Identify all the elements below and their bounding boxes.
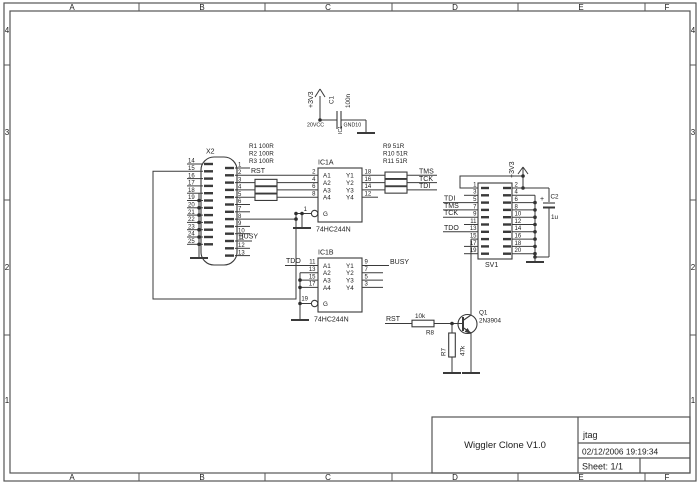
frame-column-letter: F [665, 3, 670, 12]
junction-dot [298, 278, 302, 282]
connector-pin-pad [204, 236, 213, 238]
pin-name: A4 [323, 195, 331, 202]
pin-number: 19 [188, 195, 195, 201]
pin-number: 1 [304, 207, 308, 213]
pin-number: 18 [188, 188, 195, 194]
junction-dot [197, 228, 201, 232]
connector-pin-pad [204, 207, 213, 209]
pin-number: 9 [365, 260, 369, 266]
inverter-bubble [311, 210, 317, 216]
resistor-body [255, 187, 277, 194]
connector-pin-pad [503, 253, 511, 255]
connector-pin-pad [225, 211, 234, 213]
connector-pin-pad [225, 181, 234, 183]
pin-number: 15 [188, 166, 195, 172]
schematic-svg: Wiggler Clone V1.0 jtag 02/12/2006 19:19… [0, 0, 700, 484]
pin-name: A1 [323, 263, 331, 270]
pin-name: A1 [323, 173, 331, 180]
transistor-collector [463, 315, 471, 321]
frame-row-number: 4 [691, 26, 696, 35]
connector-pin-pad [225, 254, 234, 256]
connector-pin-pad [225, 167, 234, 169]
polarity-plus: + [540, 196, 544, 203]
component-part-number: 74HC244N [316, 227, 351, 234]
pin-number: 13 [309, 267, 316, 273]
net-label-tdo: TDO [444, 225, 459, 232]
connector-pin-pad [204, 229, 213, 231]
resistor-body [385, 172, 407, 179]
pin-number: 20 [188, 203, 195, 209]
connector-pin-pad [481, 216, 489, 218]
pin-number: 5 [365, 274, 369, 280]
junction-dot [294, 217, 298, 221]
junction-dot [197, 206, 201, 210]
connector-pin-pad [204, 163, 213, 165]
net-label-tdi: TDI [419, 183, 430, 190]
frame-column-letter: B [199, 473, 204, 482]
component-ref: IC1B [318, 250, 334, 257]
pin-name: A4 [323, 285, 331, 292]
junction-dot [197, 199, 201, 203]
connector-pin-pad [503, 231, 511, 233]
pin-number: 4 [312, 177, 316, 183]
wire [320, 89, 325, 97]
frame-column-letter: D [452, 473, 458, 482]
pin-number: 20 [515, 248, 522, 254]
resistor-body [412, 320, 434, 327]
component-value: 10k [415, 313, 426, 320]
connector-pin-pad [225, 225, 234, 227]
net-label-busy: BUSY [239, 234, 258, 241]
connector-pin-pad [204, 243, 213, 245]
connector-pin-pad [503, 216, 511, 218]
resistor-label: R3 100R [249, 158, 274, 165]
junction-dot [521, 174, 525, 178]
component-ref: SV1 [485, 262, 498, 269]
component-value: 100n [345, 93, 352, 108]
pin-number: 14 [188, 159, 195, 165]
power-rail-label: +3V3 [308, 91, 315, 108]
frame-column-letter: B [199, 3, 204, 12]
pin-number: 18 [365, 170, 372, 176]
pin-number: 8 [312, 191, 316, 197]
power-pin-label: 20VCC [307, 123, 324, 129]
net-label-busy: BUSY [390, 259, 409, 266]
net-label-tms: TMS [444, 203, 459, 210]
timestamp: 02/12/2006 19:19:34 [582, 447, 659, 457]
junction-dot [197, 213, 201, 217]
frame-outer-border [4, 3, 696, 481]
pin-name: Y4 [346, 285, 354, 292]
frame-row-number: 2 [691, 263, 696, 272]
text-labels: AABBCCDDEEFF44332211+3V3C1100n20VCCGND10… [5, 3, 696, 482]
document-name: jtag [582, 430, 598, 440]
title-block: Wiggler Clone V1.0 jtag 02/12/2006 19:19… [432, 417, 690, 473]
pin-number: 16 [365, 177, 372, 183]
frame-column-letter: E [578, 473, 583, 482]
power-pin-label: GND10 [344, 123, 362, 129]
frame-column-letter: A [69, 473, 75, 482]
pin-number: 2 [312, 170, 316, 176]
component-value: 1u [551, 214, 559, 221]
connector-pin-pad [503, 245, 511, 247]
pin-name: Y4 [346, 195, 354, 202]
component-part-number: 74HC244N [314, 317, 349, 324]
junction-dot [197, 221, 201, 225]
pin-name: A3 [323, 278, 331, 285]
pin-number: 24 [188, 232, 195, 238]
connector-pin-pad [225, 196, 234, 198]
connector-pin-pad [204, 185, 213, 187]
pin-number: 11 [470, 219, 477, 225]
wire [518, 167, 523, 174]
pin-number: 7 [365, 267, 369, 273]
connector-pin-pad [503, 194, 511, 196]
pin-number: 21 [188, 210, 195, 216]
resistor-body [385, 179, 407, 186]
pin-number: 13 [238, 250, 245, 256]
junction-dot [294, 212, 298, 216]
net-wires [153, 89, 549, 373]
pin-number: 16 [188, 173, 195, 179]
resistor-label: R2 100R [249, 150, 274, 157]
net-label-tdi: TDI [444, 196, 455, 203]
net-label-tdo: TDO [286, 258, 301, 265]
pin-number: 3 [365, 282, 369, 288]
connector-pin-pad [481, 209, 489, 211]
net-label-tms: TMS [419, 169, 434, 176]
net-label-rst: RST [251, 168, 266, 175]
connector-pin-pad [503, 201, 511, 203]
connector-pin-pad [481, 245, 489, 247]
pin-name: A2 [323, 270, 331, 277]
frame-column-letter: F [665, 473, 670, 482]
resistor-body [385, 187, 407, 194]
pin-number: 15 [470, 234, 477, 240]
pin-number: 19 [301, 297, 308, 303]
pin-name: Y3 [346, 278, 354, 285]
pin-number: 14 [365, 184, 372, 190]
component-ref: C1 [329, 95, 336, 104]
net-label-tck: TCK [444, 210, 458, 217]
pin-number: 12 [515, 219, 522, 225]
connector-pin-pad [503, 187, 511, 189]
component-ref: X2 [206, 149, 215, 156]
component-ref: C2 [551, 194, 560, 201]
frame-column-letter: E [578, 3, 583, 12]
resistor-label: R1 100R [249, 143, 274, 150]
connector-pin-pad [225, 240, 234, 242]
resistor-label: R11 51R [383, 158, 408, 165]
wire [523, 167, 528, 174]
schematic-title: Wiggler Clone V1.0 [464, 440, 546, 451]
frame-column-letter: C [325, 473, 331, 482]
pin-name: A2 [323, 180, 331, 187]
connector-pin-pad [225, 189, 234, 191]
junction-dot [197, 235, 201, 239]
pin-number: 18 [515, 241, 522, 247]
component-ref: IC1 [338, 126, 344, 134]
connector-pin-pad [204, 192, 213, 194]
frame-column-letter: D [452, 3, 458, 12]
pin-number: 17 [470, 241, 477, 247]
connector-pin-pad [481, 201, 489, 203]
connector-pin-pad [204, 177, 213, 179]
connector-pin-pad [481, 187, 489, 189]
pin-name: Y1 [346, 173, 354, 180]
drawing-frame [4, 3, 696, 481]
connector-pin-pad [503, 209, 511, 211]
pin-number: 10 [515, 212, 522, 218]
component-ref: R7 [441, 347, 448, 356]
pin-number: 12 [365, 191, 372, 197]
pin-name: G [323, 301, 328, 308]
frame-column-letter: C [325, 3, 331, 12]
connector-pin-pad [481, 238, 489, 240]
connector-pin-pad [225, 174, 234, 176]
pin-number: 15 [309, 274, 316, 280]
net-label-tck: TCK [419, 176, 433, 183]
pin-number: 11 [309, 260, 316, 266]
frame-row-number: 1 [691, 396, 696, 405]
connector-pin-pad [481, 223, 489, 225]
pin-number: 17 [188, 181, 195, 187]
pin-number: 14 [515, 226, 522, 232]
net-label-rst: RST [386, 316, 401, 323]
frame-row-number: 4 [5, 26, 10, 35]
connector-pin-pad [204, 199, 213, 201]
pin-name: Y2 [346, 180, 354, 187]
pin-name: Y2 [346, 270, 354, 277]
sheet-number: Sheet: 1/1 [582, 462, 623, 472]
inverter-bubble [311, 300, 317, 306]
component-ref: R8 [426, 330, 435, 337]
pin-number: 16 [515, 234, 522, 240]
wire [315, 89, 320, 97]
connector-pin-pad [204, 214, 213, 216]
pin-name: Y1 [346, 263, 354, 270]
component-part-number: 2N3904 [479, 318, 502, 325]
frame-row-number: 2 [5, 263, 10, 272]
connector-pin-pad [481, 231, 489, 233]
junction-dot [318, 118, 322, 122]
pin-number: 13 [470, 226, 477, 232]
pin-number: 17 [309, 282, 316, 288]
connector-pin-pad [503, 238, 511, 240]
pin-name: Y3 [346, 187, 354, 194]
pin-name: A3 [323, 187, 331, 194]
resistor-body [255, 194, 277, 201]
component-ref: IC1A [318, 160, 334, 167]
resistor-label: R9 51R [383, 143, 405, 150]
frame-inner-border [10, 11, 690, 473]
resistor-body [449, 333, 456, 357]
connector-pin-pad [481, 253, 489, 255]
pin-number: 19 [470, 248, 477, 254]
connector-pin-pad [204, 170, 213, 172]
pin-number: 12 [238, 243, 245, 249]
connector-pin-pad [225, 203, 234, 205]
frame-row-number: 3 [5, 128, 10, 137]
resistor-body [255, 179, 277, 186]
frame-row-number: 1 [5, 396, 10, 405]
schematic-canvas: Wiggler Clone V1.0 jtag 02/12/2006 19:19… [0, 0, 700, 484]
pin-number: 6 [312, 184, 316, 190]
connector-pin-pad [204, 221, 213, 223]
connector-pin-pad [225, 247, 234, 249]
frame-column-letter: A [69, 3, 75, 12]
junction-dot [298, 286, 302, 290]
pin-number: 25 [188, 239, 195, 245]
connector-pin-pad [503, 223, 511, 225]
resistor-label: R10 51R [383, 150, 408, 157]
component-value: 47k [460, 345, 467, 356]
connector-pin-pad [225, 233, 234, 235]
connector-pin-pad [481, 194, 489, 196]
frame-row-number: 3 [691, 128, 696, 137]
pin-number: 22 [188, 217, 195, 223]
pin-number: 23 [188, 224, 195, 230]
power-rail-label: +3V3 [509, 161, 516, 178]
component-ref: Q1 [479, 310, 488, 317]
connector-pin-pad [225, 218, 234, 220]
pin-name: G [323, 211, 328, 218]
